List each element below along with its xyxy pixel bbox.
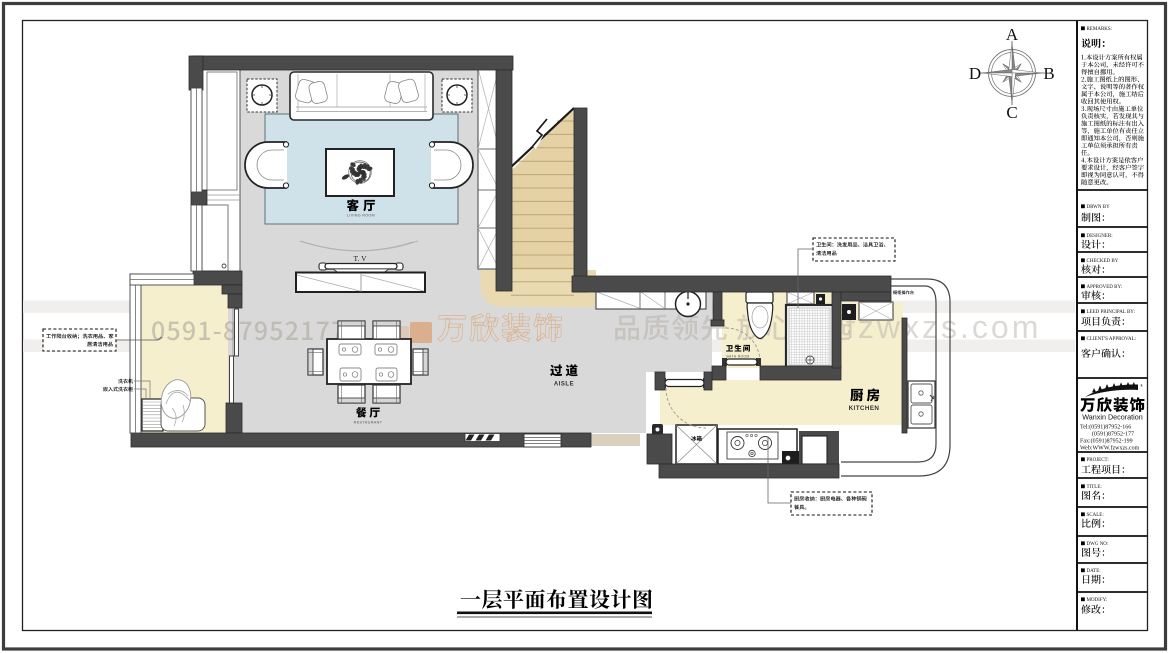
svg-text:CHECKED BY: CHECKED BY <box>1087 259 1119 264</box>
svg-text:D: D <box>969 64 981 83</box>
svg-text:®: ® <box>1140 383 1143 388</box>
svg-text:SCALE:: SCALE: <box>1087 513 1104 518</box>
svg-text:Fax:(0591)87952-199: Fax:(0591)87952-199 <box>1080 438 1133 445</box>
svg-text:Tel:(0591)87952-166: Tel:(0591)87952-166 <box>1080 424 1131 431</box>
svg-text:Web:WWW.fzwxzs.com: Web:WWW.fzwxzs.com <box>1080 445 1140 452</box>
svg-text:T. V: T. V <box>353 254 367 263</box>
svg-text:PROJECT:: PROJECT: <box>1087 458 1109 463</box>
svg-text:TITLE:: TITLE: <box>1087 485 1102 490</box>
svg-text:DATE:: DATE: <box>1087 569 1101 574</box>
svg-text:AISLE: AISLE <box>554 382 574 388</box>
svg-text:KITCHEN: KITCHEN <box>849 405 880 412</box>
svg-text:REMARKS:: REMARKS: <box>1087 27 1113 32</box>
svg-text:LIVING ROOM: LIVING ROOM <box>347 214 375 218</box>
svg-text:BATH ROOM: BATH ROOM <box>727 355 750 359</box>
svg-text:DWG NO:: DWG NO: <box>1087 542 1109 547</box>
svg-text:LEED PRINCIPAL BY:: LEED PRINCIPAL BY: <box>1087 310 1135 315</box>
svg-text:DESIGNER:: DESIGNER: <box>1087 234 1113 239</box>
svg-text:A: A <box>1006 25 1019 44</box>
svg-text:(0591)87952-177: (0591)87952-177 <box>1092 431 1134 438</box>
svg-text:B: B <box>1043 64 1054 83</box>
svg-text:Wanxin Decoration: Wanxin Decoration <box>1082 413 1142 422</box>
svg-text:RESTAURANT: RESTAURANT <box>354 421 383 425</box>
svg-text:C: C <box>1006 103 1017 122</box>
svg-text:MODIFY:: MODIFY: <box>1087 598 1108 603</box>
svg-text:DRWN BY: DRWN BY <box>1087 205 1111 210</box>
svg-text:APPROVED BY:: APPROVED BY: <box>1087 285 1123 290</box>
svg-text:CLIENT'S APPROVAL:: CLIENT'S APPROVAL: <box>1087 337 1137 342</box>
